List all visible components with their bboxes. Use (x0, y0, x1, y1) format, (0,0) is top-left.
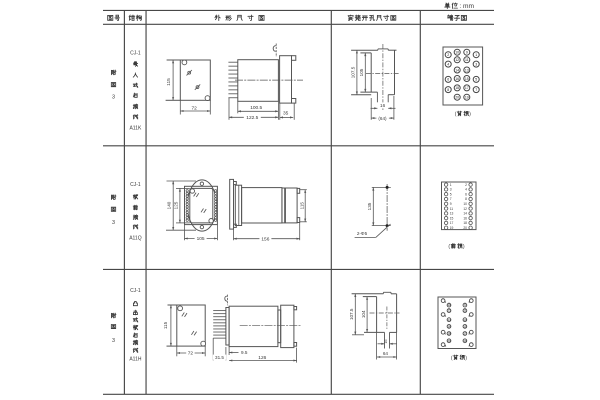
svg-text:16: 16 (455, 77, 459, 81)
svg-text:14: 14 (455, 68, 459, 72)
svg-text:125: 125 (174, 201, 179, 209)
svg-text:14: 14 (447, 318, 451, 322)
svg-text:105: 105 (359, 68, 364, 76)
svg-text:5: 5 (450, 192, 452, 196)
svg-text:105: 105 (197, 236, 205, 242)
svg-text:10: 10 (463, 202, 467, 206)
svg-text:6: 6 (465, 192, 467, 196)
svg-text:3: 3 (112, 95, 115, 101)
svg-text:11: 11 (465, 58, 469, 62)
svg-text:3: 3 (112, 220, 115, 226)
svg-text:8: 8 (447, 88, 449, 92)
svg-text:12: 12 (447, 309, 451, 313)
svg-text:115: 115 (163, 321, 168, 329)
svg-text::: : (459, 3, 461, 10)
svg-text:20: 20 (447, 339, 451, 343)
svg-text:17: 17 (465, 86, 469, 90)
svg-text:6: 6 (447, 78, 449, 82)
svg-text:135: 135 (367, 202, 372, 210)
svg-text:35: 35 (283, 110, 289, 116)
svg-text:A11H: A11H (129, 356, 142, 362)
svg-text:12: 12 (463, 207, 467, 211)
svg-text:13: 13 (463, 318, 467, 322)
svg-text:): ) (465, 355, 467, 361)
svg-text:(: ( (455, 112, 457, 118)
svg-text:CJ-1: CJ-1 (130, 288, 141, 294)
svg-text:9: 9 (450, 202, 452, 206)
svg-text:11: 11 (463, 309, 466, 313)
svg-text:12: 12 (455, 58, 459, 62)
svg-text:18: 18 (463, 221, 467, 225)
svg-text:3: 3 (112, 338, 115, 344)
svg-text:126: 126 (258, 355, 266, 361)
svg-text:18: 18 (455, 86, 459, 90)
svg-text:19: 19 (465, 95, 469, 99)
svg-text:104: 104 (361, 310, 366, 318)
svg-text:72: 72 (192, 106, 198, 112)
svg-text:9: 9 (466, 50, 468, 54)
svg-text:122.5: 122.5 (246, 115, 258, 121)
svg-text:13: 13 (465, 68, 469, 72)
svg-text:20: 20 (463, 226, 467, 230)
svg-text:7: 7 (475, 88, 477, 92)
svg-text:CJ-1: CJ-1 (130, 50, 141, 56)
svg-text:19: 19 (450, 226, 454, 230)
svg-text:16: 16 (463, 216, 467, 220)
svg-text:(: ( (448, 244, 450, 250)
svg-text:31.5: 31.5 (215, 355, 224, 360)
svg-text:mm: mm (463, 3, 474, 10)
svg-text:A11K: A11K (129, 125, 142, 131)
svg-text:5: 5 (475, 78, 477, 82)
svg-text:13: 13 (450, 212, 454, 216)
svg-text:9.5: 9.5 (241, 350, 248, 355)
svg-text:15: 15 (463, 324, 467, 328)
svg-text:107.5: 107.5 (351, 66, 356, 78)
svg-text:(64): (64) (378, 116, 387, 121)
svg-text:15: 15 (465, 77, 469, 81)
svg-text:16: 16 (384, 340, 388, 344)
svg-text:): ) (469, 112, 471, 118)
svg-text:1: 1 (450, 183, 452, 187)
svg-text:3: 3 (475, 62, 477, 66)
svg-text:19: 19 (463, 339, 467, 343)
svg-text:107.5: 107.5 (349, 308, 354, 320)
svg-text:18: 18 (447, 332, 451, 336)
svg-text:15: 15 (450, 216, 454, 220)
svg-text:2: 2 (465, 183, 467, 187)
svg-text:4: 4 (465, 188, 467, 192)
svg-text:64: 64 (383, 351, 389, 356)
svg-text:2-Φ5: 2-Φ5 (357, 231, 368, 236)
svg-text:1: 1 (475, 53, 477, 57)
svg-text:16: 16 (447, 324, 451, 328)
svg-text:): ) (463, 244, 465, 250)
svg-text:2: 2 (447, 53, 449, 57)
svg-text:10: 10 (455, 50, 459, 54)
svg-text:115: 115 (166, 78, 172, 86)
svg-text:17: 17 (450, 221, 454, 225)
svg-text:8: 8 (465, 197, 467, 201)
svg-text:20: 20 (455, 95, 459, 99)
svg-text:115: 115 (299, 202, 304, 210)
svg-text:156: 156 (261, 236, 269, 242)
svg-text:16: 16 (380, 103, 386, 108)
svg-text:7: 7 (450, 197, 452, 201)
svg-text:(: ( (451, 355, 453, 361)
svg-text:10: 10 (447, 303, 451, 307)
svg-text:17: 17 (463, 332, 467, 336)
svg-text:3: 3 (450, 188, 452, 192)
svg-text:11: 11 (450, 207, 454, 211)
svg-text:100.5: 100.5 (250, 105, 262, 111)
svg-text:140: 140 (167, 201, 172, 209)
svg-text:72: 72 (188, 351, 194, 357)
svg-text:4: 4 (447, 62, 449, 66)
svg-text:A11Q: A11Q (129, 235, 142, 241)
svg-text:CJ-1: CJ-1 (130, 182, 141, 188)
svg-text:14: 14 (463, 212, 467, 216)
